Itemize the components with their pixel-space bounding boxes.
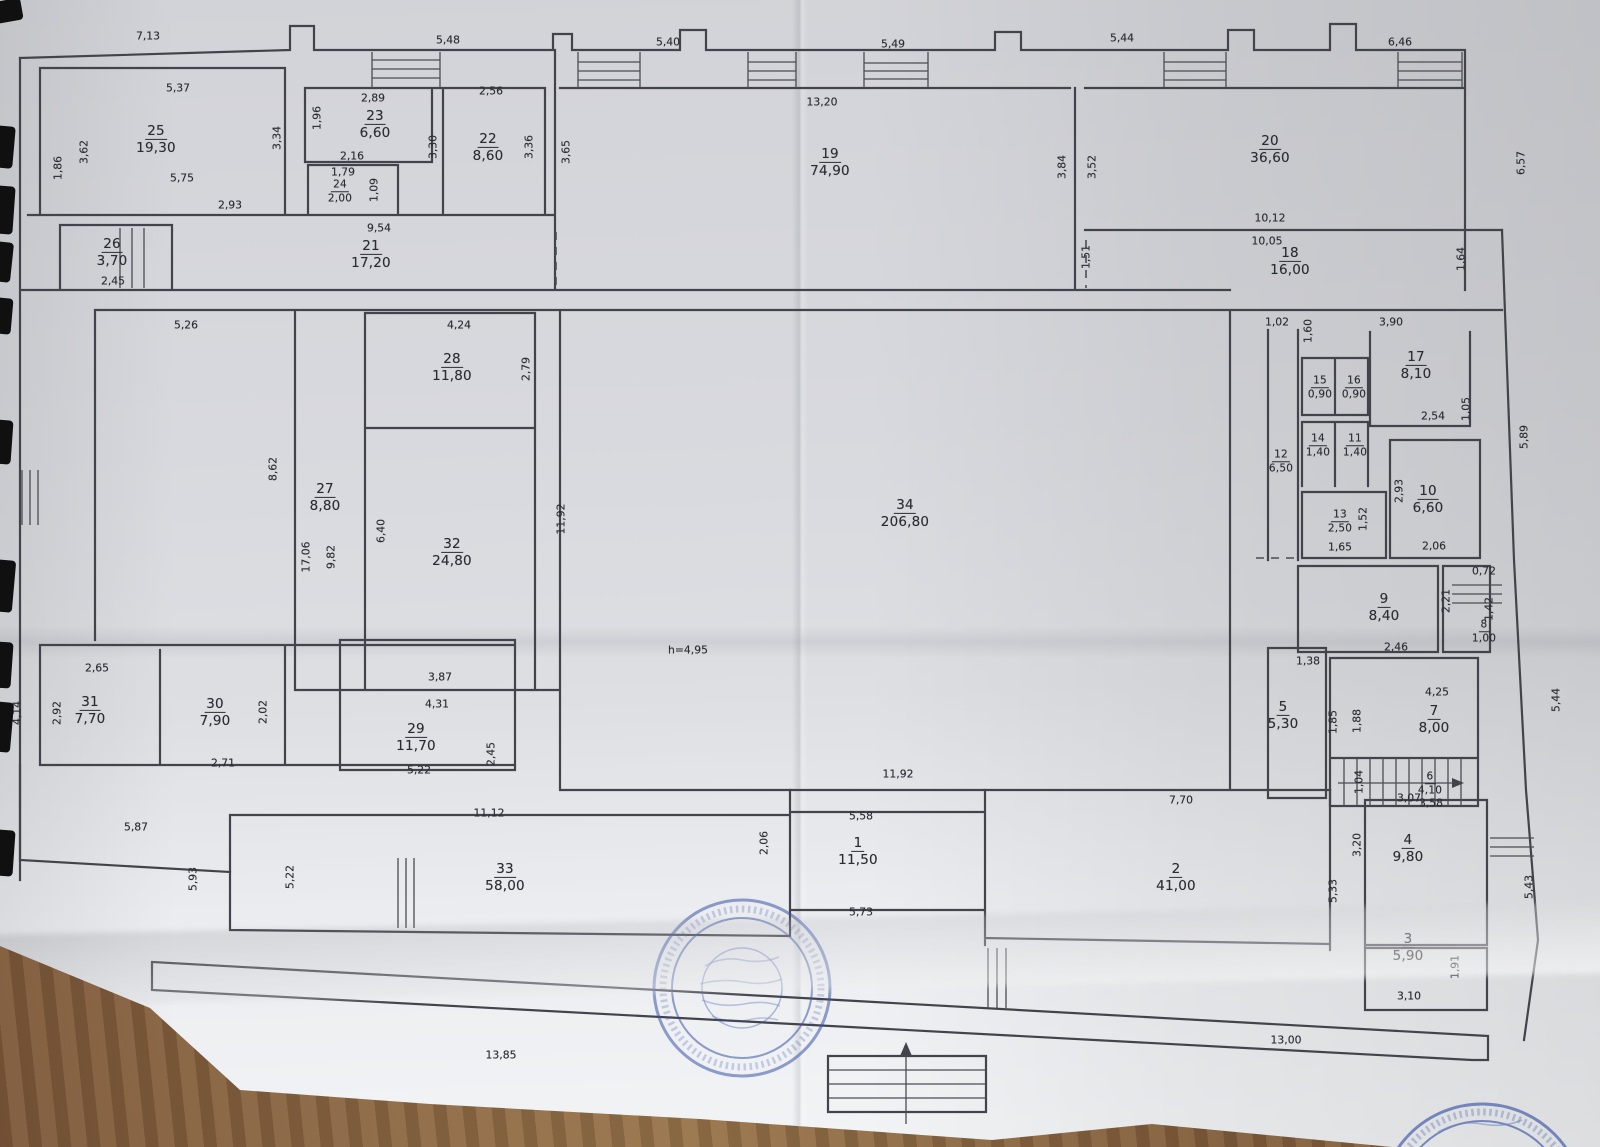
- dimension-label: 1,52: [1357, 507, 1370, 531]
- dimension-label: 8,62: [267, 457, 280, 481]
- dimension-label: 1,86: [52, 156, 65, 180]
- room-area: 1,40: [1306, 447, 1330, 459]
- dimension-label: 3,30: [427, 135, 440, 159]
- plan-labels: 111,50241,0035,9049,8055,3064,1078,0081,…: [0, 0, 1600, 1147]
- dimension-label: 2,45: [101, 275, 125, 288]
- room-label-8: 81,00: [1472, 619, 1496, 645]
- dimension-label: 1,91: [1449, 955, 1462, 979]
- room-area: 17,20: [351, 256, 391, 271]
- dimension-label: 3,52: [1086, 155, 1099, 179]
- room-area: 36,60: [1250, 151, 1290, 166]
- room-label-32: 3224,80: [432, 537, 472, 569]
- dimension-label: 4,25: [1425, 686, 1449, 699]
- room-area: 8,10: [1401, 367, 1432, 382]
- room-label-21: 2117,20: [351, 239, 391, 271]
- dimension-label: 5,48: [436, 34, 460, 47]
- dimension-label: 1,05: [1460, 397, 1473, 421]
- room-area: 74,90: [810, 164, 850, 179]
- dimension-label: 1,38: [1296, 655, 1320, 668]
- room-number: 17: [1405, 350, 1427, 366]
- dimension-label: 1,42: [1483, 597, 1496, 621]
- dimension-label: 5,37: [166, 82, 190, 95]
- room-number: 22: [477, 132, 499, 148]
- room-number: 33: [494, 862, 516, 878]
- room-label-10: 106,60: [1413, 484, 1444, 516]
- room-number: 19: [819, 147, 841, 163]
- dimension-label: 5,44: [1110, 32, 1134, 45]
- photo-of-floor-plan: 111,50241,0035,9049,8055,3064,1078,0081,…: [0, 0, 1600, 1147]
- dimension-label: 2,06: [758, 831, 771, 855]
- dimension-label: 2,06: [1422, 540, 1446, 553]
- room-label-25: 2519,30: [136, 124, 176, 156]
- dimension-label: 7,13: [136, 30, 160, 43]
- room-area: 1,00: [1472, 633, 1496, 645]
- dimension-label: 10,12: [1255, 212, 1286, 225]
- dimension-label: 1,60: [1302, 319, 1315, 343]
- dimension-label: 3,62: [78, 140, 91, 164]
- room-number: 20: [1259, 134, 1281, 150]
- room-number: 9: [1378, 592, 1391, 608]
- room-label-14: 141,40: [1306, 433, 1330, 459]
- dimension-label: 3,65: [560, 140, 573, 164]
- room-number: 31: [79, 695, 101, 711]
- dimension-label: 3,10: [1397, 990, 1421, 1003]
- dimension-label: 2,93: [1393, 479, 1406, 503]
- dimension-label: 3,07: [1397, 792, 1421, 805]
- room-area: 4,10: [1418, 785, 1442, 797]
- room-area: 8,60: [473, 149, 504, 164]
- room-label-7: 78,00: [1419, 704, 1450, 736]
- dimension-label: 13,85: [486, 1049, 517, 1062]
- dimension-label: 9,82: [325, 545, 338, 569]
- dimension-label: 1,04: [1353, 770, 1366, 794]
- room-area: 2,50: [1328, 523, 1352, 535]
- dimension-label: 4,31: [425, 698, 449, 711]
- dimension-label: 2,65: [85, 662, 109, 675]
- dimension-label: 2,56: [479, 85, 503, 98]
- room-label-24: 242,00: [328, 179, 352, 205]
- dimension-label: 5,44: [1550, 688, 1563, 712]
- room-label-33: 3358,00: [485, 862, 525, 894]
- room-label-6: 64,10: [1418, 771, 1442, 797]
- dimension-label: 11,12: [474, 807, 505, 820]
- dimension-label: 17,06: [300, 542, 313, 573]
- room-area: 3,70: [97, 254, 128, 269]
- room-area: 19,30: [136, 141, 176, 156]
- dimension-label: 1,79: [331, 166, 355, 179]
- dimension-label: 3,84: [1056, 155, 1069, 179]
- dimension-label: 5,93: [187, 867, 200, 891]
- room-label-4: 49,80: [1393, 833, 1424, 865]
- room-area: 0,90: [1308, 389, 1332, 401]
- room-area: 8,40: [1369, 609, 1400, 624]
- dimension-label: 2,16: [340, 150, 364, 163]
- dimension-label: 1,96: [311, 106, 324, 130]
- room-number: 5: [1277, 700, 1290, 716]
- room-area: 9,80: [1393, 850, 1424, 865]
- room-number: 32: [441, 537, 463, 553]
- room-label-26: 263,70: [97, 237, 128, 269]
- dimension-label: 2,21: [1440, 589, 1453, 613]
- dimension-label: 2,54: [1421, 410, 1445, 423]
- dimension-label: 13,00: [1271, 1034, 1302, 1047]
- dimension-label: 3,58: [1419, 797, 1443, 810]
- dimension-label: 11,92: [883, 768, 914, 781]
- room-number: 3: [1402, 932, 1415, 948]
- dimension-label: h=4,95: [668, 644, 708, 657]
- dimension-label: 2,45: [485, 742, 498, 766]
- room-area: 6,50: [1269, 463, 1293, 475]
- room-number: 10: [1417, 484, 1439, 500]
- room-area: 5,30: [1268, 717, 1299, 732]
- room-label-30: 307,90: [200, 697, 231, 729]
- room-label-13: 132,50: [1328, 509, 1352, 535]
- room-label-29: 2911,70: [396, 722, 436, 754]
- room-number: 34: [894, 498, 916, 514]
- dimension-label: 0,72: [1472, 565, 1496, 578]
- room-area: 7,70: [75, 712, 106, 727]
- dimension-label: 2,02: [257, 700, 270, 724]
- room-label-23: 236,60: [360, 109, 391, 141]
- dimension-label: 5,87: [124, 821, 148, 834]
- room-number: 23: [364, 109, 386, 125]
- room-number: 11: [1346, 433, 1364, 446]
- room-number: 26: [101, 237, 123, 253]
- dimension-label: 7,70: [1169, 794, 1193, 807]
- dimension-label: 3,87: [428, 671, 452, 684]
- room-number: 24: [331, 179, 349, 192]
- room-number: 4: [1402, 833, 1415, 849]
- dimension-label: 1,65: [1328, 541, 1352, 554]
- dimension-label: 10,05: [1252, 235, 1283, 248]
- dimension-label: 6,57: [1515, 151, 1528, 175]
- room-area: 16,00: [1270, 263, 1310, 278]
- room-area: 1,40: [1343, 447, 1367, 459]
- room-label-18: 1816,00: [1270, 246, 1310, 278]
- room-label-12: 126,50: [1269, 449, 1293, 475]
- room-label-22: 228,60: [473, 132, 504, 164]
- room-label-34: 34206,80: [881, 498, 929, 530]
- room-label-15: 150,90: [1308, 375, 1332, 401]
- dimension-label: 5,40: [656, 36, 680, 49]
- room-area: 8,80: [310, 499, 341, 514]
- dimension-label: 5,89: [1518, 425, 1531, 449]
- room-label-1: 111,50: [838, 836, 878, 868]
- room-label-5: 55,30: [1268, 700, 1299, 732]
- room-number: 6: [1425, 771, 1436, 784]
- room-number: 1: [852, 836, 865, 852]
- room-label-2: 241,00: [1156, 862, 1196, 894]
- room-label-3: 35,90: [1393, 932, 1424, 964]
- room-label-11: 111,40: [1343, 433, 1367, 459]
- dimension-label: 5,22: [284, 865, 297, 889]
- room-area: 7,90: [200, 714, 231, 729]
- room-label-28: 2811,80: [432, 352, 472, 384]
- room-area: 24,80: [432, 554, 472, 569]
- room-area: 58,00: [485, 879, 525, 894]
- dimension-label: 1,88: [1351, 709, 1364, 733]
- dimension-label: 3,90: [1379, 316, 1403, 329]
- room-area: 206,80: [881, 515, 929, 530]
- room-area: 5,90: [1393, 949, 1424, 964]
- room-area: 2,00: [328, 193, 352, 205]
- room-number: 28: [441, 352, 463, 368]
- dimension-label: 5,26: [174, 319, 198, 332]
- dimension-label: 9,54: [367, 222, 391, 235]
- room-area: 11,50: [838, 853, 878, 868]
- room-number: 13: [1331, 509, 1349, 522]
- dimension-label: 5,49: [881, 38, 905, 51]
- dimension-label: 6,40: [375, 519, 388, 543]
- dimension-label: 3,34: [271, 126, 284, 150]
- room-area: 6,60: [1413, 501, 1444, 516]
- room-number: 14: [1309, 433, 1327, 446]
- dimension-label: 5,75: [170, 172, 194, 185]
- room-label-20: 2036,60: [1250, 134, 1290, 166]
- room-label-16: 160,90: [1342, 375, 1366, 401]
- room-area: 6,60: [360, 126, 391, 141]
- dimension-label: 5,22: [407, 764, 431, 777]
- room-number: 25: [145, 124, 167, 140]
- dimension-label: 2,93: [218, 199, 242, 212]
- room-label-9: 98,40: [1369, 592, 1400, 624]
- room-number: 8: [1479, 619, 1490, 632]
- dimension-label: 4,24: [447, 319, 471, 332]
- room-area: 41,00: [1156, 879, 1196, 894]
- room-area: 11,70: [396, 739, 436, 754]
- room-label-27: 278,80: [310, 482, 341, 514]
- paper-sheet: 111,50241,0035,9049,8055,3064,1078,0081,…: [0, 0, 1600, 1147]
- dimension-label: 1,09: [368, 178, 381, 202]
- dimension-label: 2,71: [211, 757, 235, 770]
- dimension-label: 2,92: [51, 701, 64, 725]
- dimension-label: 6,46: [1388, 36, 1412, 49]
- room-number: 21: [360, 239, 382, 255]
- room-label-31: 317,70: [75, 695, 106, 727]
- room-area: 11,80: [432, 369, 472, 384]
- room-area: 0,90: [1342, 389, 1366, 401]
- dimension-label: 3,36: [523, 135, 536, 159]
- dimension-label: 1,85: [1327, 710, 1340, 734]
- room-number: 7: [1428, 704, 1441, 720]
- room-number: 2: [1170, 862, 1183, 878]
- dimension-label: 5,73: [849, 906, 873, 919]
- dimension-label: 5,58: [849, 810, 873, 823]
- room-number: 18: [1279, 246, 1301, 262]
- room-label-17: 178,10: [1401, 350, 1432, 382]
- room-number: 30: [204, 697, 226, 713]
- dimension-label: 2,46: [1384, 641, 1408, 654]
- dimension-label: 1,64: [1455, 247, 1468, 271]
- dimension-label: 2,79: [520, 357, 533, 381]
- dimension-label: 5,33: [1327, 879, 1340, 903]
- dimension-label: 3,20: [1351, 833, 1364, 857]
- dimension-label: 5,43: [1523, 875, 1536, 899]
- room-area: 8,00: [1419, 721, 1450, 736]
- room-number: 29: [405, 722, 427, 738]
- room-number: 15: [1311, 375, 1329, 388]
- room-label-19: 1974,90: [810, 147, 850, 179]
- dimension-label: 2,89: [361, 92, 385, 105]
- dimension-label: 11,92: [555, 504, 568, 535]
- room-number: 12: [1272, 449, 1290, 462]
- room-number: 16: [1345, 375, 1363, 388]
- dimension-label: 1,02: [1265, 316, 1289, 329]
- dimension-label: 13,20: [807, 96, 838, 109]
- dimension-label: 1,51: [1080, 245, 1093, 269]
- room-number: 27: [314, 482, 336, 498]
